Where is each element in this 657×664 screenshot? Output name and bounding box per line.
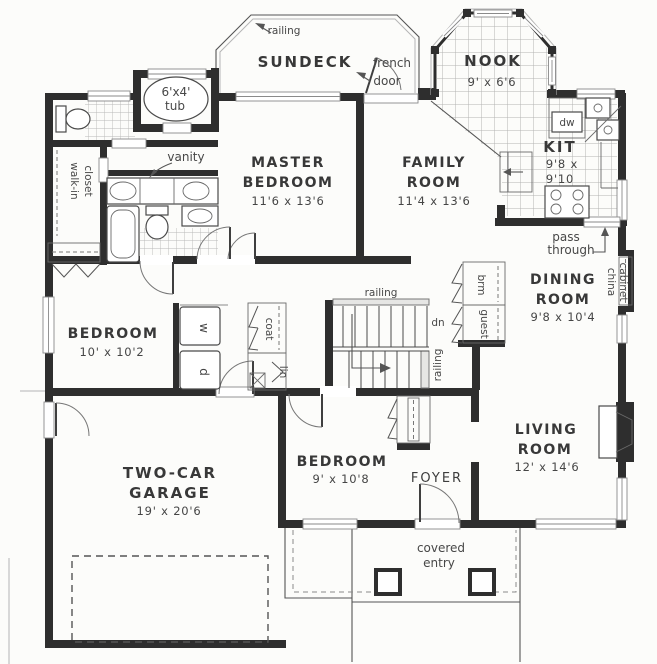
bedroom-lower-dims: 9' x 10'8 bbox=[313, 472, 370, 486]
closet-under-stairs bbox=[388, 396, 430, 443]
vanity-counter bbox=[107, 178, 218, 204]
broom-closet-label: brm bbox=[475, 274, 487, 295]
nook-label: NOOK bbox=[464, 52, 522, 70]
bathtub-icon bbox=[107, 206, 139, 262]
covered-entry-label: entry bbox=[423, 556, 455, 570]
bedroom-left-label: BEDROOM bbox=[68, 326, 159, 342]
site-lines bbox=[9, 391, 45, 664]
covered-entry-structure bbox=[285, 528, 520, 662]
nook-dims: 9' x 6'6 bbox=[468, 75, 517, 89]
garage-label: TWO-CAR bbox=[123, 464, 217, 482]
coat-closet-label: coat bbox=[263, 318, 275, 341]
french-door-label: french bbox=[373, 56, 411, 70]
entry-post bbox=[470, 570, 494, 594]
laundry bbox=[180, 305, 228, 389]
china-cabinet-label: cabinet bbox=[617, 262, 629, 301]
toilet-icon bbox=[146, 206, 168, 239]
tub-label: tub bbox=[165, 99, 185, 113]
staircase bbox=[333, 299, 429, 388]
railing-label: railing bbox=[268, 25, 301, 37]
family-room-dims: 11'4 x 13'6 bbox=[397, 194, 470, 208]
stairs-railing-label: railing bbox=[432, 349, 444, 382]
bedroom-lower-label: BEDROOM bbox=[297, 454, 388, 470]
entry-post bbox=[376, 570, 400, 594]
family-room-label: ROOM bbox=[407, 175, 462, 191]
master-bedroom-dims: 11'6 x 13'6 bbox=[251, 194, 324, 208]
door-foyer-entry bbox=[420, 484, 459, 523]
living-room-label: LIVING bbox=[515, 422, 577, 438]
kitchen-dims: 9'10 bbox=[546, 172, 574, 186]
living-room-label: ROOM bbox=[518, 442, 573, 458]
floor-plan-drawing: railing SUNDECK french door NOOK 9' x 6'… bbox=[0, 0, 657, 664]
walk-in-closet-label: walk-in bbox=[68, 162, 80, 199]
master-bedroom-label: MASTER bbox=[251, 155, 325, 171]
sundeck-label: SUNDECK bbox=[258, 53, 353, 71]
kitchen-dims: 9'8 x bbox=[546, 157, 578, 171]
fireplace-icon bbox=[599, 402, 634, 462]
door-garage-side bbox=[56, 403, 89, 436]
stove-icon bbox=[545, 186, 589, 218]
dining-room-dims: 9'8 x 10'4 bbox=[530, 310, 595, 324]
kitchen-label: KIT bbox=[543, 138, 576, 156]
toilet-icon bbox=[56, 106, 90, 132]
guest-closet-label: guest bbox=[478, 309, 490, 338]
stairs-railing-label: railing bbox=[365, 287, 398, 299]
master-bedroom-label: BEDROOM bbox=[243, 175, 334, 191]
bath-tile-floor bbox=[85, 100, 135, 142]
floor-plan: railing SUNDECK french door NOOK 9' x 6'… bbox=[0, 0, 657, 664]
living-room-dims: 12' x 14'6 bbox=[514, 460, 579, 474]
stair-treads bbox=[333, 306, 429, 388]
vanity-label: vanity bbox=[167, 150, 204, 164]
stairs-dn-label: dn bbox=[431, 317, 444, 329]
china-cabinet-label: china bbox=[605, 268, 617, 296]
tub-label: 6'x4' bbox=[162, 85, 191, 99]
garage-label: GARAGE bbox=[129, 484, 211, 502]
bath-sink-icon bbox=[182, 206, 218, 226]
dishwasher-label: dw bbox=[559, 117, 575, 129]
dining-room-label: ROOM bbox=[536, 292, 591, 308]
french-door-label: door bbox=[373, 74, 400, 88]
washer-label: w bbox=[197, 323, 211, 333]
linen-closet-label: lin bbox=[277, 366, 289, 379]
family-room-label: FAMILY bbox=[402, 155, 466, 171]
covered-entry-label: covered bbox=[417, 541, 465, 555]
bedroom-left-dims: 10' x 10'2 bbox=[79, 345, 144, 359]
garage-door-dashed bbox=[72, 556, 268, 642]
dining-room-label: DINING bbox=[530, 272, 596, 288]
pass-through-label: pass bbox=[552, 230, 579, 244]
door-bedroom-lower bbox=[289, 394, 322, 427]
garage-dims: 19' x 20'6 bbox=[136, 504, 201, 518]
pass-through-label: through bbox=[547, 243, 594, 257]
dryer-label: d bbox=[197, 368, 211, 376]
walk-in-closet-label: closet bbox=[82, 165, 94, 196]
foyer-label: FOYER bbox=[411, 471, 463, 486]
door-bedroom-left bbox=[140, 261, 173, 294]
